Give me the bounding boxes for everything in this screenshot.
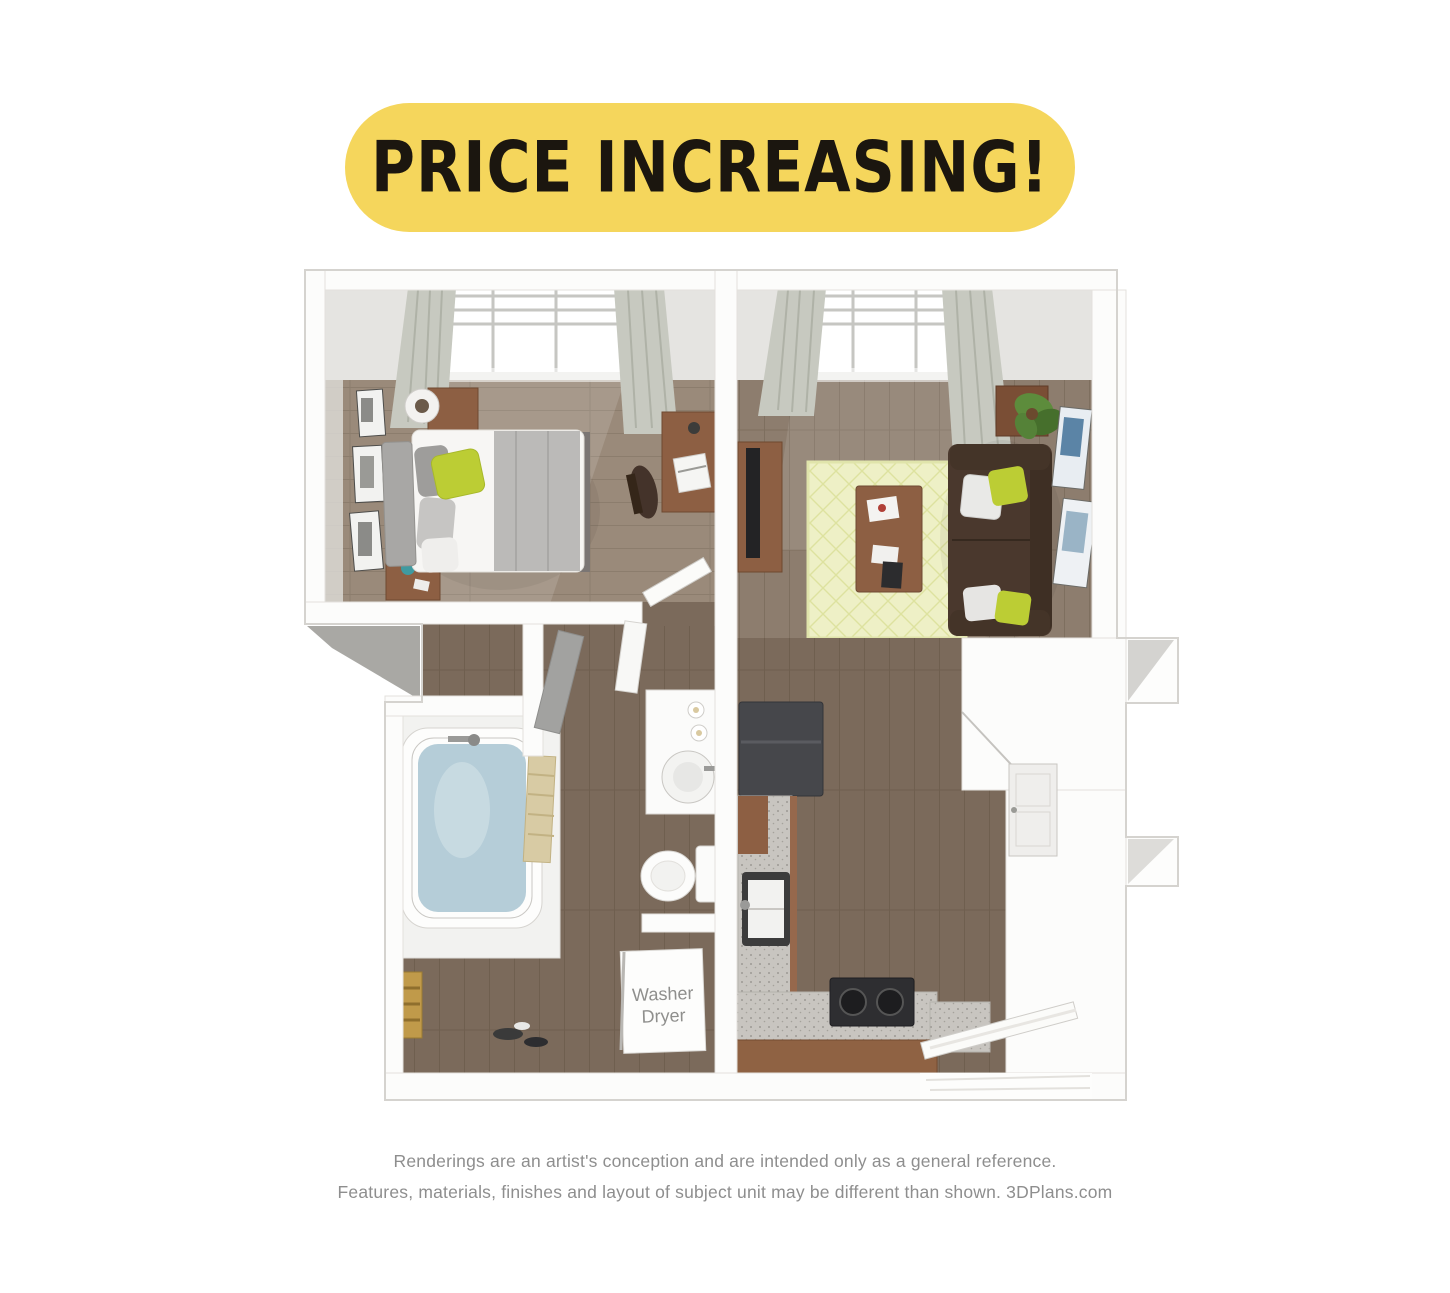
bed-pillow-green [430,447,486,500]
table-lamp-center [415,399,429,413]
coffee-table [856,486,922,592]
refrigerator [739,702,823,796]
kitchen-sink [740,872,790,946]
disclaimer-line-1: Renderings are an artist's conception an… [0,1146,1450,1177]
central-wall [715,270,737,1100]
washer-dryer: Washer Dryer [620,949,706,1054]
bed-pillow-white [421,537,459,573]
tablet [881,561,903,588]
living-room [737,271,1097,640]
burner [840,989,866,1015]
floor-item-dark [493,1028,523,1040]
east-wall-door [1009,764,1057,856]
bedroom [325,271,716,604]
water-highlight [434,762,490,858]
sofa [940,440,1064,640]
bed [382,430,600,590]
art-image [358,522,372,556]
washer-label: Washer [632,983,694,1005]
floor-item-dark2 [524,1037,548,1047]
bedroom-west-wall [305,270,325,624]
cup-contents [696,730,702,736]
page: PRICE INCREASING! [0,0,1450,1293]
desk-lamp [688,422,700,434]
disclaimer-line-2: Features, materials, finishes and layout… [0,1177,1450,1208]
kitchen-cabinet-upper [738,796,768,854]
art-image [360,456,374,488]
tub-faucet [448,736,470,742]
bedroom-west-wall-face [325,380,343,604]
recess-shadow-left [307,626,420,700]
dryer-label: Dryer [641,1005,686,1027]
laptop [673,453,710,492]
burner [877,989,903,1015]
sink-faucet [740,900,750,910]
door-handle [1011,807,1017,813]
cup-contents [693,707,699,713]
art-image-blue [1060,417,1084,457]
price-banner-text: PRICE INCREASING! [371,126,1049,209]
vanity [646,690,722,814]
tv-screen [746,448,760,558]
bed-headboard [382,442,416,567]
sofa-pillow-green2 [994,590,1032,626]
toilet-seat [651,861,685,891]
table-decor [878,504,886,512]
bedroom-window-sill-glow [426,368,624,382]
north-wall [305,270,1117,290]
living-east-wall [1092,290,1126,638]
floor-item-light [514,1022,530,1030]
toilet-partition-wall [642,914,715,932]
price-banner: PRICE INCREASING! [345,103,1075,232]
floor-plan-rendering: Washer Dryer [290,250,1180,1130]
plant-pot [1026,408,1038,420]
bed-blanket [494,431,580,571]
disclaimer: Renderings are an artist's conception an… [0,1146,1450,1208]
sofa-back [1030,448,1052,632]
bedroom-south-wall [305,602,642,624]
sofa-armrest-top [950,444,1050,470]
bath-partition-wall [523,624,543,756]
kitchen-cabinet-face-south [737,1040,937,1073]
bathroom-west-wall [385,702,403,1100]
tub-faucet-knob [468,734,480,746]
sofa-pillow-green [987,465,1029,507]
sink-basin [673,762,703,792]
towels [523,755,556,862]
art-image [361,398,373,422]
stove [830,978,914,1026]
